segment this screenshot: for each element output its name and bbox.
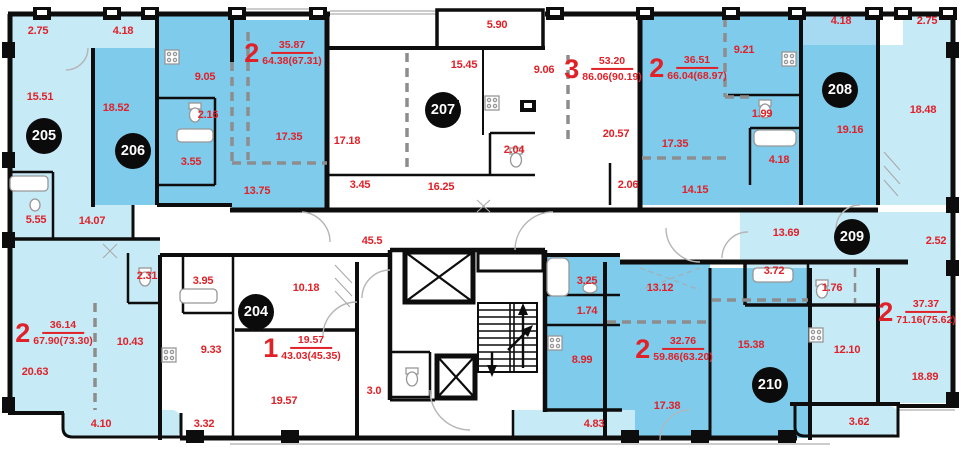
rooms-count: 2 (878, 300, 893, 324)
room-area-label: 17.35 (276, 131, 303, 143)
room-area-label: 2.04 (504, 144, 525, 156)
room-area-label: 3.32 (194, 418, 215, 430)
total-area: 71.16(75.62) (896, 313, 956, 326)
rooms-count: 3 (564, 57, 579, 81)
apartment-badge-206: 206 (115, 133, 151, 169)
apartment-summary-207: 3 53.2086.06(90.19) (564, 55, 642, 83)
apartment-number: 207 (431, 102, 455, 118)
bathtub-icon (180, 289, 217, 303)
living-area: 32.76 (662, 335, 704, 350)
apartment-number: 208 (828, 82, 852, 98)
room-area-label: 13.12 (647, 282, 674, 294)
room-area-label: 20.57 (603, 128, 630, 140)
room-area-label: 4.10 (91, 418, 112, 430)
living-area: 19.57 (290, 334, 332, 349)
room-area-label: 2.06 (618, 179, 639, 191)
room-area-label: 3.25 (577, 275, 598, 287)
room-area-label: 14.07 (79, 215, 106, 227)
room-area-label: 9.21 (734, 44, 755, 56)
stove-icon (485, 96, 499, 110)
staircase (478, 253, 543, 377)
room-area-label: 3.95 (193, 275, 214, 287)
apartment-badge-210: 210 (752, 367, 788, 403)
living-area: 53.20 (591, 55, 633, 70)
room-area-label: 2.31 (137, 270, 158, 282)
room-area-label: 4.18 (769, 154, 790, 166)
room-area-label: 14.15 (682, 184, 709, 196)
apartment-summary-206: 2 35.8764.38(67.31) (244, 39, 322, 67)
room-area-label: 17.35 (662, 138, 689, 150)
room-area-label: 20.63 (22, 366, 49, 378)
room-area-label: 15.38 (738, 339, 765, 351)
total-area: 43.03(45.35) (281, 349, 341, 362)
room-area-label: 8.99 (572, 354, 593, 366)
room-area-label: 17.18 (334, 135, 361, 147)
room-area-label: 10.43 (117, 336, 144, 348)
apartment-summary-210: 2 32.7659.86(63.20) (635, 335, 713, 363)
rooms-count: 2 (244, 41, 259, 65)
room-area-label: 15.51 (27, 91, 54, 103)
apartment-summary-209: 2 37.3771.16(75.62) (878, 298, 956, 326)
room-area-label: 4.18 (831, 15, 852, 27)
room-area-label: 5.90 (487, 19, 508, 31)
room-area-label: 1.74 (577, 305, 598, 317)
total-area: 86.06(90.19) (582, 70, 642, 83)
room-area-label: 17.38 (654, 400, 681, 412)
room-area-label: 18.52 (103, 102, 130, 114)
stove-icon (782, 52, 796, 66)
total-area: 66.04(68.97) (667, 69, 727, 82)
room-area-label: 45.5 (362, 235, 383, 247)
apartment-badge-208: 208 (822, 72, 858, 108)
apartment-badge-207: 207 (425, 92, 461, 128)
stove-icon (162, 348, 176, 362)
room-area-label: 9.33 (201, 344, 222, 356)
apartment-number: 209 (840, 229, 864, 245)
rooms-count: 2 (635, 337, 650, 361)
toilet-icon (406, 368, 418, 386)
total-area: 64.38(67.31) (262, 54, 322, 67)
room-area-label: 2.52 (926, 235, 947, 247)
apartment-number: 206 (121, 143, 145, 159)
room-area-label: 15.45 (451, 59, 478, 71)
room-area-label: 13.75 (244, 185, 271, 197)
room-area-label: 10.18 (293, 282, 320, 294)
living-area: 37.37 (905, 298, 947, 313)
room-area-label: 1.99 (752, 108, 773, 120)
sink-icon (30, 199, 40, 211)
room-area-label: 3.62 (849, 416, 870, 428)
apartment-summary-204: 1 19.5743.03(45.35) (263, 334, 341, 362)
stove-icon (165, 50, 179, 64)
bathtub-icon (754, 130, 796, 146)
room-area-label: 18.48 (910, 104, 937, 116)
floor-plan: 2.75 4.18 15.51 18.52 9.05 2.16 3.55 17.… (0, 0, 970, 451)
room-area-label: 13.69 (773, 227, 800, 239)
room-area-label: 19.16 (837, 124, 864, 136)
room-area-label: 19.57 (271, 395, 298, 407)
room-fills (8, 14, 955, 440)
room-area-label: 3.55 (181, 156, 202, 168)
apartment-badge-205: 205 (26, 118, 62, 154)
apartment-number: 204 (244, 304, 268, 320)
rooms-count: 2 (15, 321, 30, 345)
total-area: 67.90(73.30) (33, 334, 93, 347)
bathtub-icon (10, 176, 48, 191)
total-area: 59.86(63.20) (653, 350, 713, 363)
apartment-badge-204: 204 (238, 294, 274, 330)
apartment-number: 205 (32, 128, 56, 144)
living-area: 36.51 (676, 54, 718, 69)
room-area-label: 4.83 (584, 418, 605, 430)
bathtub-icon (177, 129, 213, 142)
room-area-label: 2.16 (198, 109, 219, 121)
floor-plan-drawing (0, 0, 970, 451)
room-area-label: 5.55 (26, 214, 47, 226)
room-area-label: 3.0 (367, 385, 382, 397)
rooms-count: 1 (263, 336, 278, 360)
room-area-label: 9.05 (195, 71, 216, 83)
apartment-summary-208: 2 36.5166.04(68.97) (649, 54, 727, 82)
room-area-label: 1.76 (822, 282, 843, 294)
living-area: 36.14 (42, 319, 84, 334)
stove-icon (809, 328, 823, 342)
stove-icon (548, 336, 562, 350)
room-area-label: 3.45 (350, 179, 371, 191)
bathtub-icon (547, 258, 569, 296)
room-area-label: 12.10 (834, 344, 861, 356)
apartment-badge-209: 209 (834, 219, 870, 255)
rooms-count: 2 (649, 56, 664, 80)
room-area-label: 4.18 (113, 25, 134, 37)
apartment-number: 210 (758, 377, 782, 393)
living-area: 35.87 (271, 39, 313, 54)
room-area-label: 3.72 (764, 265, 785, 277)
room-area-label: 2.75 (917, 15, 938, 27)
room-area-label: 9.06 (534, 64, 555, 76)
room-area-label: 16.25 (428, 181, 455, 193)
room-area-label: 18.89 (912, 371, 939, 383)
room-area-label: 2.75 (28, 25, 49, 37)
apartment-summary-205: 2 36.1467.90(73.30) (15, 319, 93, 347)
